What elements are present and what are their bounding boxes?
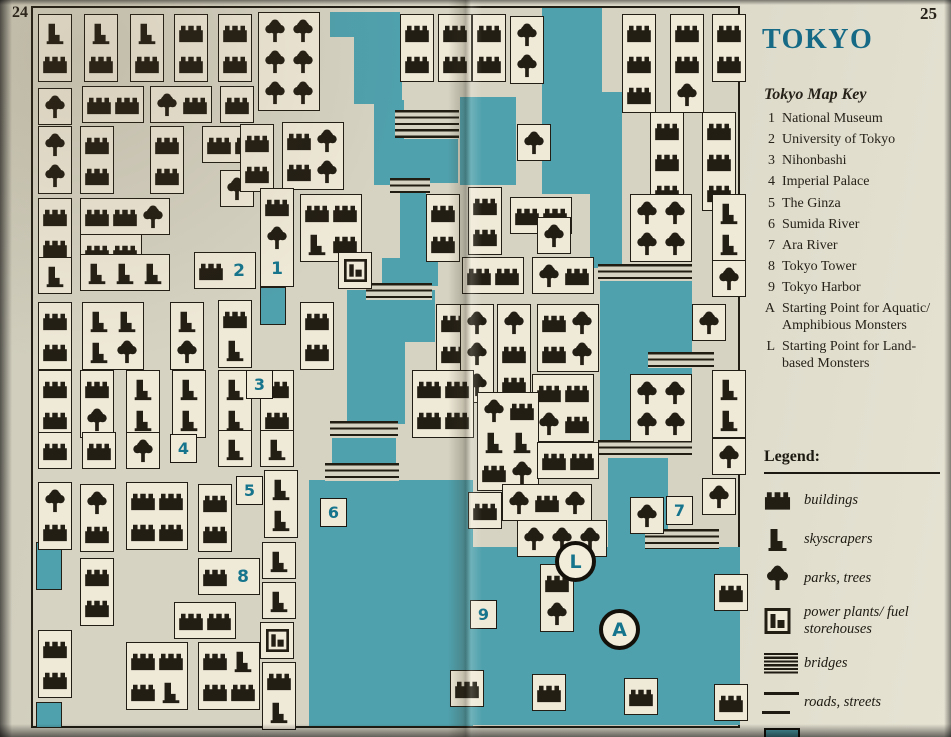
legend-item-label: parks, trees: [804, 570, 871, 587]
block-cell: [201, 518, 229, 549]
block-cell: [229, 676, 257, 707]
skyscraper-icon: [115, 309, 139, 333]
building-icon: [178, 23, 204, 43]
block-cell: [129, 373, 157, 404]
skyscraper-icon: [223, 338, 247, 362]
skyscraper-icon: [764, 526, 791, 552]
block-cell: [221, 48, 249, 79]
block-cell: [568, 445, 596, 476]
map-key-entry: 8Tokyo Tower: [764, 259, 946, 276]
tree-icon: [717, 266, 741, 292]
block-cell: [83, 373, 111, 404]
block-cell: [500, 338, 528, 369]
block-cell: [303, 228, 331, 259]
map-key-entry-id: 2: [764, 132, 775, 149]
building-icon: [476, 54, 502, 74]
tree-icon: [315, 128, 339, 154]
building-icon: [564, 266, 590, 286]
building-icon: [154, 166, 180, 186]
map-key-entry: 9Tokyo Harbor: [764, 280, 946, 297]
building-icon: [304, 342, 330, 362]
city-block: [174, 602, 236, 639]
block-cell: [633, 408, 661, 439]
building-icon: [536, 683, 562, 703]
block-cell: [41, 305, 69, 336]
block-cell: [267, 473, 295, 504]
bridge: [395, 110, 459, 138]
city-block: 8: [198, 558, 260, 595]
tree-icon: [465, 341, 489, 367]
building-icon: [84, 135, 110, 155]
city-block: [624, 678, 658, 715]
block-cell: [633, 228, 661, 259]
legend-item: water: [764, 728, 940, 737]
block-cell: [221, 433, 249, 464]
legend-item-label: power plants/ fuel storehouses: [804, 604, 940, 637]
building-icon: [304, 311, 330, 331]
block-cell: [129, 676, 157, 707]
block-cell: [221, 334, 249, 365]
city-block: [262, 542, 296, 579]
block-cell: [41, 260, 69, 291]
building-icon: [86, 441, 112, 461]
city-block: [426, 194, 460, 262]
building-icon: [114, 95, 140, 115]
city-block: [80, 254, 170, 291]
block-cell: [177, 605, 205, 636]
block-cell: [153, 160, 181, 191]
building-icon: [764, 487, 791, 513]
tokyo-map-canvas: 128345679LA: [31, 6, 740, 728]
tree-icon: [764, 565, 791, 591]
water-icon: [764, 728, 800, 737]
building-icon: [541, 344, 567, 364]
block-cell: [41, 373, 69, 404]
city-block: [174, 14, 208, 82]
block-cell: [129, 485, 157, 516]
map-marker-1: 1: [263, 253, 291, 284]
building-icon: [716, 54, 742, 74]
block-cell: [633, 197, 661, 228]
city-block: [537, 217, 571, 254]
map-key-entry: 6Sumida River: [764, 217, 946, 234]
block-cell: [625, 17, 653, 48]
building-icon: [706, 121, 732, 141]
tree-icon: [663, 231, 687, 257]
city-block: [468, 187, 502, 255]
city-block: [532, 257, 594, 294]
block-cell: [568, 307, 596, 338]
city-block: [630, 374, 692, 442]
building-icon: [222, 54, 248, 74]
building-icon: [501, 344, 527, 364]
skyscraper-icon: [267, 549, 291, 573]
block-cell: [285, 125, 313, 156]
power-plant-icon: [764, 608, 791, 634]
city-block: [712, 438, 746, 475]
map-key-heading: Tokyo Map Key: [764, 86, 946, 104]
map-key-entry: 5The Ginza: [764, 196, 946, 213]
block-cell: [513, 50, 541, 81]
city-block: [126, 432, 160, 469]
block-cell: [505, 487, 533, 518]
tree-icon: [265, 225, 289, 251]
block-cell: [157, 676, 185, 707]
city-block: [712, 370, 746, 438]
block-cell: [83, 518, 111, 549]
tree-icon: [155, 92, 179, 118]
tree-icon: [291, 18, 315, 44]
legend-item: bridges: [764, 650, 940, 676]
block-cell: [113, 89, 141, 120]
block-cell: [83, 201, 111, 232]
map-key-entry-id: 4: [764, 174, 775, 191]
skyscraper-icon: [223, 437, 247, 461]
tree-icon: [263, 80, 287, 106]
map-key-entry-id: A: [764, 301, 775, 335]
building-icon: [654, 121, 680, 141]
city-block: [260, 430, 294, 467]
block-cell: [403, 48, 431, 79]
tree-icon: [570, 310, 594, 336]
block-cell: [85, 336, 113, 367]
tree-icon: [635, 503, 659, 529]
city-block: [497, 304, 531, 403]
block-cell: [673, 48, 701, 79]
city-block: [622, 14, 656, 113]
bridge: [325, 463, 399, 481]
city-block: [714, 684, 748, 721]
tree-icon: [542, 223, 566, 249]
block-cell: [540, 307, 568, 338]
city-block: [537, 442, 599, 479]
block-cell: [41, 160, 69, 191]
map-marker-7: 7: [666, 496, 693, 525]
building-icon: [84, 598, 110, 618]
building-icon: [674, 23, 700, 43]
block-cell: [263, 433, 291, 464]
skyscraper-icon: [267, 589, 291, 613]
block-cell: [471, 221, 499, 252]
block-cell: [85, 435, 113, 466]
legend-icon-slot: [764, 728, 804, 737]
tree-icon: [502, 310, 526, 336]
building-icon: [416, 410, 442, 430]
block-cell: [540, 220, 568, 251]
block-cell: [403, 17, 431, 48]
skyscraper-icon: [269, 508, 293, 532]
block-cell: [197, 255, 225, 286]
map-key-entry-label: Nihonbashi: [782, 153, 946, 170]
water-region: [347, 342, 405, 424]
block-cell: [673, 79, 701, 110]
skyscraper-icon: [159, 680, 183, 704]
block-cell: [443, 373, 471, 404]
city-block: [130, 14, 164, 82]
block-cell: [129, 516, 157, 547]
city-block: [532, 674, 566, 711]
building-icon: [444, 410, 470, 430]
block-cell: [41, 17, 69, 48]
map-key-entry-label: Sumida River: [782, 217, 946, 234]
city-block: [262, 582, 296, 619]
legend-item-label: bridges: [804, 655, 848, 672]
map-key-entry: 1National Museum: [764, 111, 946, 128]
city-block: [670, 14, 704, 113]
water-region: [36, 702, 62, 728]
map-key-entry: 4Imperial Palace: [764, 174, 946, 191]
block-cell: [661, 197, 689, 228]
block-cell: [520, 523, 548, 554]
water-region: [590, 92, 622, 268]
map-key-entry-id: 3: [764, 153, 775, 170]
city-block: [150, 126, 184, 194]
block-cell: [83, 561, 111, 592]
map-key-entry: 2University of Tokyo: [764, 132, 946, 149]
building-icon: [494, 266, 520, 286]
skyscraper-icon: [223, 408, 247, 432]
skyscraper-icon: [87, 309, 111, 333]
block-cell: [285, 156, 313, 187]
skyscraper-icon: [177, 408, 201, 432]
block-cell: [261, 15, 289, 46]
tree-icon: [635, 411, 659, 437]
building-icon: [536, 383, 562, 403]
city-block: [262, 662, 296, 730]
building-icon: [286, 131, 312, 151]
legend-icon-slot: [764, 487, 804, 513]
block-cell: [540, 338, 568, 369]
map-marker-3: 3: [246, 370, 273, 399]
block-cell: [705, 146, 733, 177]
city-block: [170, 302, 204, 370]
tree-icon: [131, 438, 155, 464]
city-block: [220, 86, 254, 123]
block-cell: [633, 377, 661, 408]
building-icon: [481, 463, 507, 483]
legend-item-label: water: [804, 734, 837, 737]
block-cell: [83, 404, 111, 435]
tree-icon: [563, 490, 587, 516]
block-cell: [568, 338, 596, 369]
building-icon: [178, 54, 204, 74]
building-icon: [626, 85, 652, 105]
city-block: [198, 642, 260, 710]
legend-item: skyscrapers: [764, 526, 940, 552]
map-key-entry-id: L: [764, 339, 775, 373]
tree-icon: [717, 444, 741, 470]
block-cell: [471, 190, 499, 221]
building-icon: [88, 54, 114, 74]
block-cell: [535, 677, 563, 708]
building-icon: [286, 162, 312, 182]
city-block: [172, 370, 206, 438]
block-cell: [83, 160, 111, 191]
block-cell: [415, 404, 443, 435]
block-cell: [261, 46, 289, 77]
building-icon: [626, 54, 652, 74]
tree-icon: [510, 460, 534, 486]
building-icon: [332, 203, 358, 223]
building-icon: [42, 522, 68, 542]
block-cell: [715, 404, 743, 435]
map-key: Tokyo Map Key 1National Museum2Universit…: [764, 86, 946, 377]
bridge-icon: [764, 653, 798, 674]
city-block: [537, 304, 599, 372]
building-icon: [509, 401, 535, 421]
map-key-entry-label: Tokyo Harbor: [782, 280, 946, 297]
city-block: [630, 497, 664, 534]
building-icon: [222, 309, 248, 329]
block-cell: [471, 495, 499, 526]
tree-icon: [43, 488, 67, 514]
city-block: [532, 374, 594, 442]
map-key-entry-id: 6: [764, 217, 775, 234]
map-key-entry-label: Ara River: [782, 238, 946, 255]
block-cell: [535, 260, 563, 291]
building-icon: [182, 95, 208, 115]
skyscraper-icon: [43, 21, 67, 45]
city-block: [38, 126, 72, 194]
tree-icon: [43, 132, 67, 158]
city-block: [412, 370, 474, 438]
block-cell: [41, 664, 69, 695]
tree-icon: [537, 411, 561, 437]
skyscraper-icon: [267, 700, 291, 724]
building-icon: [472, 501, 498, 521]
building-icon: [202, 493, 228, 513]
legend-list: buildingsskyscrapersparks, treespower pl…: [764, 487, 940, 737]
building-icon: [541, 313, 567, 333]
block-cell: [463, 307, 491, 338]
city-block: [38, 370, 72, 438]
block-cell: [633, 500, 661, 531]
bridge: [366, 283, 432, 300]
block-cell: [263, 625, 291, 656]
legend-item: buildings: [764, 487, 940, 513]
block-cell: [673, 17, 701, 48]
map-marker-9: 9: [470, 600, 497, 629]
block-cell: [181, 89, 209, 120]
building-icon: [84, 207, 110, 227]
map-marker-4: 4: [170, 434, 197, 463]
block-cell: [205, 605, 233, 636]
map-key-entry-label: Tokyo Tower: [782, 259, 946, 276]
block-cell: [705, 481, 733, 512]
block-cell: [85, 89, 113, 120]
block-cell: [561, 487, 589, 518]
bridge: [648, 352, 714, 368]
city-block: [338, 252, 372, 289]
tree-icon: [675, 82, 699, 108]
legend-item-label: buildings: [804, 492, 858, 509]
block-cell: [331, 197, 359, 228]
city-block: [82, 432, 116, 469]
block-cell: [175, 373, 203, 404]
building-icon: [206, 611, 232, 631]
legend-item-label: skyscrapers: [804, 531, 872, 548]
city-block: [300, 302, 334, 370]
block-cell: [513, 19, 541, 50]
city-block: 2: [194, 252, 256, 289]
city-block: [400, 14, 434, 82]
building-icon: [444, 379, 470, 399]
city-block: [472, 14, 506, 82]
block-cell: [627, 681, 655, 712]
tree-icon: [515, 22, 539, 48]
block-cell: [717, 577, 745, 608]
tree-icon: [85, 490, 109, 516]
block-cell: [453, 673, 481, 704]
block-cell: [715, 48, 743, 79]
tree-icon: [175, 339, 199, 365]
block-cell: [175, 404, 203, 435]
building-icon: [112, 207, 138, 227]
building-icon: [158, 651, 184, 671]
block-cell: [303, 305, 331, 336]
building-icon: [154, 135, 180, 155]
legend-item-label: roads, streets: [804, 694, 881, 711]
page-title: TOKYO: [762, 24, 873, 56]
block-cell: [540, 445, 568, 476]
building-icon: [718, 583, 744, 603]
city-block: [38, 302, 72, 370]
city-block: [468, 492, 502, 529]
block-cell: [661, 228, 689, 259]
tree-icon: [141, 204, 165, 230]
city-block: [38, 630, 72, 698]
block-cell: [475, 17, 503, 48]
building-icon: [202, 524, 228, 544]
block-cell: [243, 158, 271, 189]
skyscraper-icon: [510, 430, 534, 454]
block-cell: [715, 228, 743, 259]
block-cell: [263, 222, 291, 253]
bridge: [598, 264, 692, 281]
building-icon: [264, 197, 290, 217]
block-cell: [475, 48, 503, 79]
block-cell: [653, 115, 681, 146]
water-region: [354, 32, 402, 104]
building-icon: [42, 54, 68, 74]
city-block: [80, 198, 170, 235]
block-cell: [717, 687, 745, 718]
power-plant-icon: [344, 259, 367, 282]
city-block: [630, 194, 692, 262]
block-cell: [41, 336, 69, 367]
skyscraper-icon: [175, 309, 199, 333]
block-cell: [129, 645, 157, 676]
building-icon: [404, 23, 430, 43]
map-marker-8: 8: [229, 561, 257, 592]
block-cell: [715, 17, 743, 48]
water-region: [260, 287, 286, 325]
tree-icon: [522, 526, 546, 552]
city-block: [126, 482, 188, 550]
tree-icon: [263, 49, 287, 75]
water-region: [460, 97, 516, 185]
building-icon: [198, 261, 224, 281]
map-key-entry: AStarting Point for Aquatic/ Amphibious …: [764, 301, 946, 335]
building-icon: [564, 414, 590, 434]
block-cell: [480, 426, 508, 457]
building-icon: [202, 567, 228, 587]
tree-icon: [663, 200, 687, 226]
block-cell: [83, 592, 111, 623]
map-key-entry-label: National Museum: [782, 111, 946, 128]
map-key-entry-label: University of Tokyo: [782, 132, 946, 149]
block-cell: [83, 129, 111, 160]
